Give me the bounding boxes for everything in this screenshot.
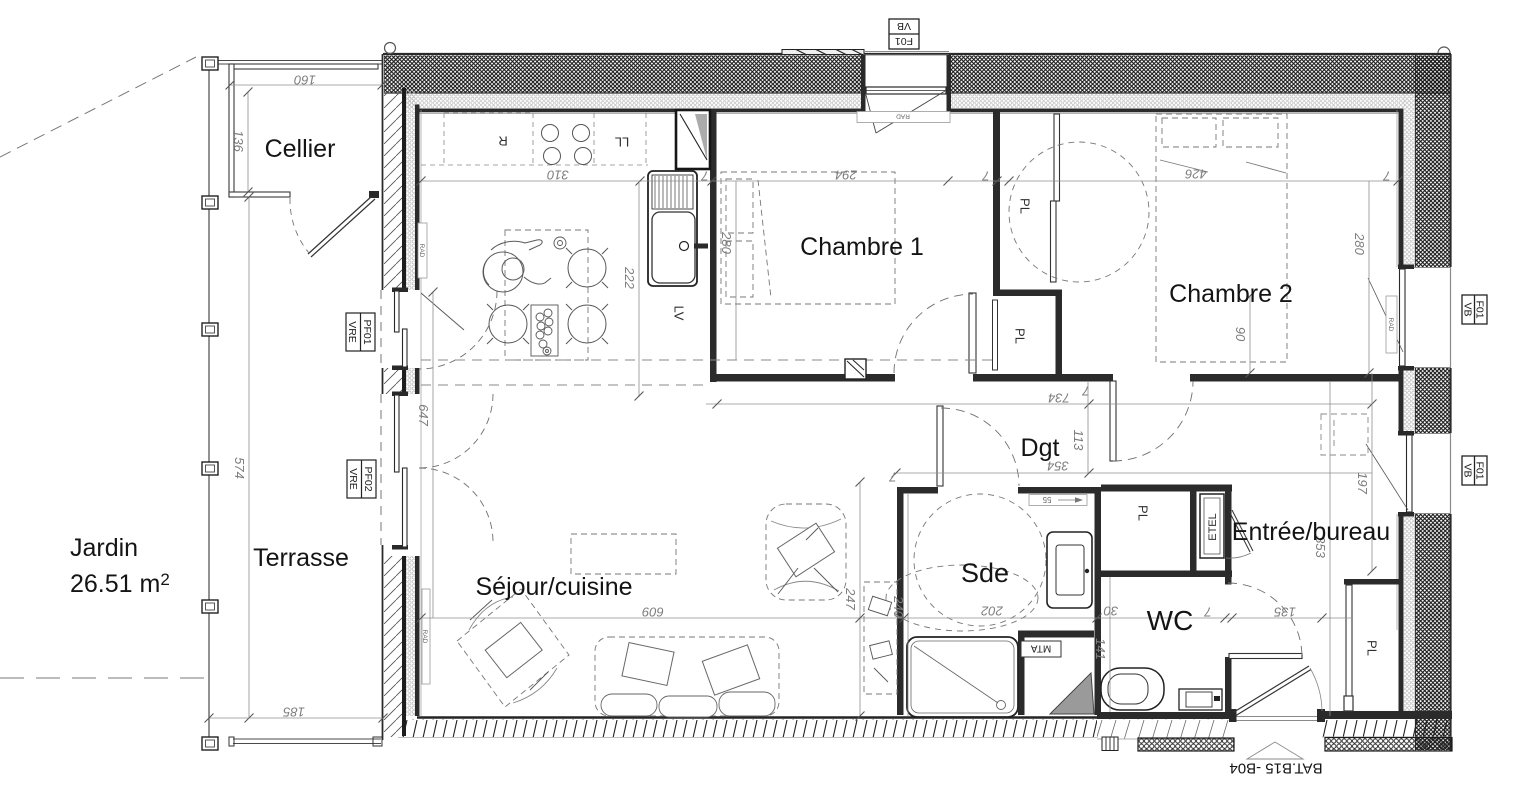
svg-text:F01: F01 — [1474, 461, 1486, 479]
svg-text:Cellier: Cellier — [265, 135, 336, 163]
svg-text:PF01: PF01 — [361, 319, 373, 344]
svg-text:26.51 m2: 26.51 m2 — [70, 570, 170, 598]
svg-text:294: 294 — [835, 168, 858, 183]
svg-text:Dgt: Dgt — [1021, 434, 1060, 462]
svg-text:VRE: VRE — [346, 321, 358, 343]
svg-text:141: 141 — [1093, 638, 1108, 660]
svg-text:Terrasse: Terrasse — [253, 544, 349, 572]
svg-text:LL: LL — [615, 134, 629, 149]
svg-text:BAT.B15 -B04: BAT.B15 -B04 — [1229, 760, 1322, 777]
svg-text:7: 7 — [982, 169, 990, 184]
svg-text:LV: LV — [671, 306, 686, 321]
svg-text:RAD: RAD — [1387, 318, 1394, 332]
svg-text:609: 609 — [642, 605, 664, 620]
svg-text:222: 222 — [622, 266, 637, 289]
svg-text:30: 30 — [1103, 604, 1118, 619]
svg-text:PL: PL — [1012, 328, 1027, 344]
svg-text:Chambre 2: Chambre 2 — [1169, 280, 1293, 308]
svg-text:135: 135 — [1273, 605, 1295, 620]
svg-text:7: 7 — [701, 169, 709, 184]
svg-text:PL: PL — [1135, 505, 1150, 521]
svg-text:197: 197 — [1355, 472, 1370, 494]
svg-text:113: 113 — [1071, 430, 1086, 451]
svg-text:7: 7 — [889, 470, 897, 485]
svg-text:ETEL: ETEL — [1207, 513, 1219, 541]
svg-text:MTA: MTA — [1030, 642, 1051, 653]
svg-text:202: 202 — [980, 604, 1003, 619]
svg-text:VRE: VRE — [347, 468, 359, 490]
svg-text:Chambre 1: Chambre 1 — [800, 233, 924, 261]
svg-text:F01: F01 — [895, 35, 913, 47]
svg-text:7: 7 — [1383, 169, 1391, 184]
svg-text:VB: VB — [1462, 302, 1474, 316]
svg-text:WC: WC — [1147, 605, 1194, 636]
svg-text:RAD: RAD — [418, 244, 425, 258]
svg-text:7: 7 — [1204, 605, 1212, 620]
svg-text:240: 240 — [891, 595, 906, 618]
svg-text:310: 310 — [546, 168, 568, 183]
svg-text:PF02: PF02 — [362, 466, 374, 491]
svg-text:647: 647 — [416, 404, 431, 426]
svg-text:185: 185 — [282, 705, 304, 720]
svg-text:136: 136 — [231, 130, 246, 152]
svg-text:280: 280 — [719, 231, 734, 254]
svg-text:Jardin: Jardin — [70, 534, 138, 562]
svg-text:Séjour/cuisine: Séjour/cuisine — [475, 573, 632, 601]
svg-text:PL: PL — [1364, 640, 1379, 656]
svg-text:VB: VB — [1462, 463, 1474, 477]
svg-text:247: 247 — [843, 587, 858, 610]
svg-text:55: 55 — [1042, 495, 1051, 504]
svg-text:RAD: RAD — [421, 630, 428, 644]
svg-text:R: R — [498, 133, 507, 148]
svg-text:RAD: RAD — [896, 113, 910, 120]
svg-text:574: 574 — [232, 457, 247, 479]
svg-text:7: 7 — [1082, 384, 1090, 399]
svg-text:90: 90 — [1233, 327, 1248, 342]
svg-text:280: 280 — [1352, 232, 1367, 255]
svg-text:160: 160 — [293, 73, 315, 88]
svg-text:Sde: Sde — [961, 558, 1009, 588]
svg-text:PL: PL — [1017, 198, 1032, 214]
svg-text:F01: F01 — [1474, 300, 1486, 318]
svg-text:426: 426 — [1184, 167, 1206, 182]
svg-text:734: 734 — [1048, 391, 1070, 406]
svg-text:Entrée/bureau: Entrée/bureau — [1232, 518, 1390, 546]
svg-text:VB: VB — [897, 20, 911, 32]
